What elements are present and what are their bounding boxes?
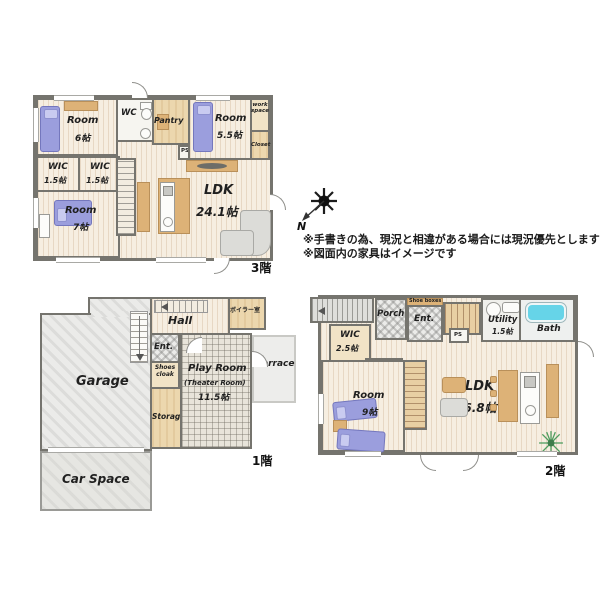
garage-label: Garage (76, 375, 129, 390)
stairs-icon (130, 311, 148, 363)
wc3-label: WC (121, 109, 137, 119)
window (54, 95, 94, 101)
floor3-room-6 (36, 98, 118, 156)
door-arc (270, 194, 286, 210)
floor2-label: 2階 (545, 462, 565, 479)
wic-b-area: 1.5帖 (86, 176, 108, 185)
room55-area: 5.5帖 (217, 131, 242, 141)
bath-label: Bath (537, 324, 561, 334)
chair-icon (490, 390, 497, 397)
wic2f-area: 2.5帖 (336, 344, 358, 353)
cabinet-icon (39, 214, 50, 238)
wic-a-area: 1.5帖 (44, 176, 66, 185)
workspace-label: work space (251, 102, 269, 115)
kitchen-counter-icon (520, 372, 540, 424)
floor3-plan: Room 6帖 WC Pantry PS Room 5.5帖 work spac… (33, 95, 273, 261)
room6-label: Room (67, 115, 98, 127)
kitchen-island-icon (498, 370, 518, 422)
toilet-bowl-icon (141, 108, 152, 120)
dining-table-icon (442, 377, 466, 393)
bathtub-icon (526, 303, 566, 322)
floorplan-canvas: { "notes": { "line1": "※手書きの為、現況と相違がある場合… (0, 0, 600, 600)
floor1-plan: Garage Hall ボイラー室 Ent. Shoes cloak Stora… (40, 295, 300, 515)
window (33, 108, 39, 142)
sofa-icon (440, 398, 468, 417)
floor3-label: 3階 (251, 259, 271, 276)
sofa-icon (220, 230, 254, 256)
floor1-label: 1階 (252, 452, 272, 469)
window (517, 451, 557, 457)
bed-icon (193, 102, 213, 152)
wic-b-label: WIC (90, 162, 110, 172)
stairs-icon (116, 158, 136, 236)
door-arc (132, 82, 148, 98)
boiler-label: ボイラー室 (230, 308, 260, 315)
window (56, 257, 100, 263)
compass-icon: N (294, 184, 344, 232)
ldk3-area: 24.1帖 (196, 206, 238, 220)
chair-icon (490, 376, 497, 383)
floor2-plan: Porch Shoe boxes Ent. PS Utility 1.5帖 Ba… (318, 293, 590, 489)
kitchen-island-icon (158, 178, 190, 234)
room7-label: Room (65, 205, 96, 217)
ps2-label: PS (454, 332, 462, 338)
car-space-label: Car Space (62, 473, 130, 487)
room6-area: 6帖 (75, 134, 90, 144)
utility-area: 1.5帖 (492, 328, 513, 337)
shoe-boxes-label: Shoe boxes (409, 299, 441, 305)
room7-area: 7帖 (73, 223, 88, 233)
window (156, 257, 206, 263)
room9-area: 9帖 (362, 408, 377, 418)
floor3-room-55 (188, 98, 252, 160)
tv-icon (197, 163, 227, 169)
door-arc (420, 455, 436, 471)
ldk3-label: LDK (204, 184, 233, 199)
floor3-wc (116, 98, 154, 142)
ent1-label: Ent. (154, 343, 173, 353)
door-arc (578, 341, 594, 357)
dresser-icon (64, 101, 98, 111)
door-arc (463, 455, 479, 471)
door-arc (214, 258, 230, 274)
room9-label: Room (353, 390, 384, 402)
cabinet-icon (546, 364, 559, 418)
shoes-cloak-label: Shoes cloak (152, 365, 178, 379)
porch-label: Porch (377, 310, 404, 320)
window (345, 451, 381, 457)
wic2f-label: WIC (340, 330, 360, 340)
floor2-room-9 (321, 360, 405, 452)
wic-a-label: WIC (48, 162, 68, 172)
closet3-label: Closet (251, 142, 270, 148)
bed-icon (40, 106, 60, 152)
stairs-icon (154, 300, 208, 313)
ent2-label: Ent. (414, 314, 434, 324)
playroom-label: Play Room (188, 363, 247, 375)
exterior-stairs-icon (310, 297, 374, 323)
playroom-sub-label: (Theater Room) (184, 379, 246, 387)
window (318, 394, 324, 424)
pantry-label: Pantry (154, 116, 183, 125)
playroom-area: 11.5帖 (198, 393, 229, 403)
chair-icon (490, 404, 497, 411)
bed-icon (336, 428, 385, 452)
window (33, 198, 39, 228)
stairs-icon (403, 360, 427, 430)
cupboard-icon (137, 182, 150, 232)
utility-label: Utility (488, 316, 517, 326)
floor2-bath (519, 298, 575, 342)
sink-icon (502, 302, 520, 313)
window (196, 95, 230, 101)
garage-door (48, 447, 144, 453)
room55-label: Room (215, 113, 246, 125)
hall-label: Hall (168, 315, 192, 328)
note-line2: ※図面内の家具はイメージです (303, 245, 456, 261)
sink-icon (140, 128, 151, 139)
